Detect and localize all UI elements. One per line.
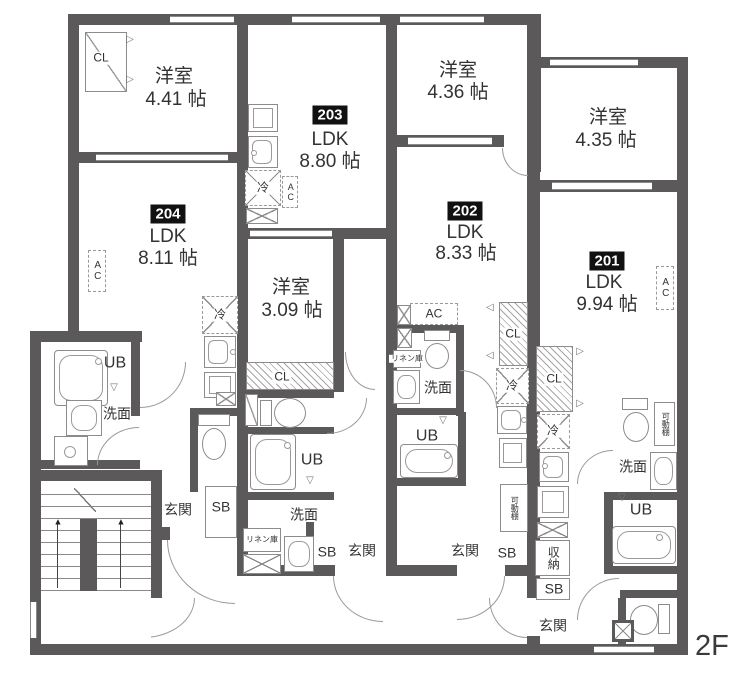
- door-arc: [489, 598, 527, 638]
- washbasin-bowl: [288, 541, 310, 567]
- shoe-box-label: SB: [210, 500, 233, 515]
- entrance-label-202: 玄関: [451, 544, 479, 559]
- toilet-bowl: [274, 398, 306, 428]
- unit-bath-label: UB: [301, 453, 323, 470]
- wall-segment: [527, 636, 540, 644]
- washroom-label: 洗面: [619, 460, 647, 475]
- window: [594, 646, 654, 653]
- sliding-door: [408, 137, 492, 145]
- unit-bath-label: UB: [104, 356, 126, 373]
- stair-direction-line: [57, 524, 58, 588]
- up-arrow-icon: ▲: [54, 518, 63, 527]
- toilet-bowl: [425, 343, 449, 369]
- window: [400, 16, 484, 23]
- room-label-bedroom-203: 洋室: [272, 278, 310, 298]
- room-size-bedroom-204: 4.41 帖: [145, 90, 206, 110]
- stair-divider-wall: [80, 519, 97, 593]
- toilet-bowl: [623, 412, 649, 442]
- stair-break-line: [74, 488, 96, 512]
- drain-dot: [444, 452, 451, 459]
- toilet-tank: [260, 400, 272, 426]
- wall-segment: [386, 14, 397, 576]
- wall-segment: [604, 566, 680, 574]
- door-triangle-left-icon: ◁: [486, 303, 494, 313]
- door-triangle-right-icon: ▷: [126, 75, 134, 85]
- ac-label: AC: [285, 182, 294, 202]
- bathtub-inner: [617, 531, 671, 559]
- faucet-dot: [542, 463, 548, 469]
- wall-segment: [527, 14, 541, 172]
- storage-label: 収納: [545, 546, 562, 570]
- wall-segment: [131, 342, 140, 416]
- toilet-bowl: [202, 428, 226, 460]
- door-arc: [577, 578, 619, 620]
- faucet-dot: [230, 349, 236, 355]
- up-arrow-icon: ▲: [117, 518, 126, 527]
- room-label-ldk-201: LDK: [586, 273, 623, 293]
- washer-box: [397, 305, 411, 325]
- door-triangle-down-icon: ▽: [618, 493, 626, 503]
- unit-badge-202: 202: [447, 202, 482, 221]
- linen-closet-label: リネン庫: [389, 355, 425, 363]
- refrigerator-label: 冷: [545, 425, 561, 438]
- wall-segment: [333, 228, 344, 392]
- stair-landing: [41, 591, 151, 644]
- door-triangle-left-icon: ◁: [486, 351, 494, 361]
- drain-dot: [95, 358, 102, 365]
- entrance-label-203: 玄関: [348, 544, 376, 559]
- sliding-door: [250, 230, 332, 237]
- door-triangle-down-icon: ▽: [439, 416, 447, 426]
- wall-segment: [152, 527, 170, 540]
- wall-segment: [68, 14, 79, 342]
- washer-box: [612, 620, 634, 642]
- window: [292, 16, 380, 23]
- sliding-door: [96, 154, 228, 161]
- washer-box: [246, 208, 278, 224]
- washroom-label: 洗面: [103, 407, 131, 422]
- room-size-ldk-203: 8.80 帖: [299, 152, 360, 172]
- unit-bath-label: UB: [416, 429, 438, 446]
- room-label-ldk-203: LDK: [312, 130, 349, 150]
- entrance-label-201: 玄関: [539, 619, 567, 634]
- window: [170, 16, 234, 23]
- wall-segment: [30, 470, 151, 481]
- kitchen-sink-basin: [208, 340, 228, 364]
- washer-box: [216, 392, 236, 406]
- sliding-door: [552, 182, 652, 190]
- room-size-bedroom-201: 4.35 帖: [575, 131, 636, 151]
- stove-top: [253, 108, 273, 128]
- utility-box: [245, 394, 258, 426]
- unit-badge-203: 203: [312, 106, 347, 125]
- door-triangle-down-icon: ▽: [110, 383, 118, 393]
- ac-label: AC: [426, 308, 443, 321]
- ac-label: AC: [92, 260, 103, 282]
- door-arc: [333, 576, 383, 622]
- room-size-ldk-202: 8.33 帖: [435, 244, 496, 264]
- floor-plan: ▲ ▲ 洋室 4.41 帖 204 LDK 8.11 帖 CL ▷ ▷ AC 冷…: [0, 0, 750, 681]
- door-arc: [327, 398, 367, 434]
- toilet-tank: [198, 414, 230, 426]
- washbasin-bowl: [654, 457, 673, 485]
- unit-badge-201: 201: [589, 252, 624, 271]
- closet-label: CL: [503, 328, 522, 341]
- door-triangle-right-icon: ▷: [576, 399, 584, 409]
- room-size-ldk-201: 9.94 帖: [576, 295, 637, 315]
- stair-direction-line: [120, 524, 121, 588]
- wall-segment: [392, 478, 466, 486]
- floor-label: 2F: [695, 630, 729, 663]
- door-arc: [502, 148, 528, 176]
- room-label-bedroom-204: 洋室: [155, 67, 193, 87]
- wall-segment: [190, 408, 198, 492]
- wall-segment: [392, 408, 464, 415]
- washbasin-bowl: [397, 375, 416, 399]
- stove-top: [503, 443, 522, 463]
- utility-dot: [64, 446, 76, 458]
- shoe-box-label: SB: [496, 546, 519, 561]
- room-size-bedroom-202: 4.36 帖: [427, 83, 488, 103]
- door-arc: [577, 450, 613, 484]
- washer-box: [537, 522, 568, 538]
- unit-bath-label: UB: [630, 503, 652, 520]
- closet-label: CL: [91, 52, 110, 65]
- refrigerator-label: 冷: [212, 309, 228, 322]
- door-triangle-down-icon: ▽: [306, 476, 314, 486]
- stove-top: [542, 491, 564, 513]
- washbasin-bowl: [71, 405, 97, 431]
- toilet-tank: [622, 398, 648, 410]
- wall-segment: [397, 565, 457, 576]
- faucet-dot: [251, 150, 257, 156]
- room-label-bedroom-201: 洋室: [589, 108, 627, 128]
- drain-dot: [284, 442, 291, 449]
- washroom-label: 洗面: [290, 508, 318, 523]
- refrigerator-label: 冷: [504, 380, 520, 393]
- unit-badge-204: 204: [150, 205, 185, 224]
- window: [30, 602, 37, 638]
- shoe-box-label: SB: [543, 582, 566, 597]
- room-label-bedroom-202: 洋室: [439, 61, 477, 81]
- door-arc: [97, 427, 139, 465]
- kitchen-sink-basin: [501, 410, 521, 430]
- movable-shelf-label: 可動棚: [508, 496, 520, 520]
- door-triangle-right-icon: ▷: [126, 35, 134, 45]
- toilet-bowl: [630, 605, 658, 635]
- washer-box: [397, 328, 412, 348]
- room-size-bedroom-203: 3.09 帖: [261, 301, 322, 321]
- door-arc: [345, 352, 375, 390]
- room-label-ldk-202: LDK: [447, 223, 484, 243]
- door-arc: [167, 540, 235, 604]
- wall-segment: [505, 565, 527, 576]
- ac-label: AC: [660, 277, 671, 299]
- shoe-box-label: SB: [316, 545, 339, 560]
- toilet-tank: [424, 330, 450, 341]
- wall-segment: [30, 644, 688, 655]
- door-arc: [460, 370, 497, 408]
- faucet-dot: [521, 417, 527, 423]
- closet-label: CL: [272, 371, 291, 384]
- washer-box: [243, 554, 281, 574]
- window: [550, 59, 638, 66]
- wall-segment: [620, 590, 677, 598]
- entrance-label-204: 玄関: [164, 503, 192, 518]
- door-arc: [140, 362, 186, 408]
- room-size-ldk-204: 8.11 帖: [138, 249, 198, 269]
- movable-shelf-label: 可動棚: [659, 412, 671, 436]
- wall-segment: [458, 412, 466, 482]
- washroom-label: 洗面: [424, 381, 452, 396]
- wall-segment: [243, 492, 334, 500]
- closet-label: CL: [544, 373, 563, 386]
- linen-closet-label: リネン庫: [244, 536, 280, 544]
- room-label-ldk-204: LDK: [150, 227, 187, 247]
- refrigerator-label: 冷: [255, 182, 271, 195]
- wall-segment: [243, 427, 334, 434]
- wall-segment: [30, 331, 142, 342]
- wall-segment: [604, 492, 680, 500]
- drain-dot: [656, 534, 663, 541]
- door-triangle-right-icon: ▷: [576, 347, 584, 357]
- toilet-tank: [658, 604, 670, 634]
